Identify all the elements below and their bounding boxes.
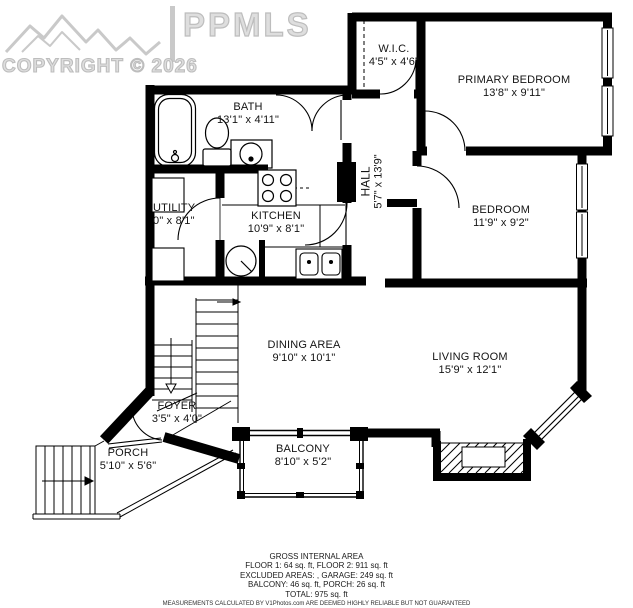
- watermark: PPMLS COPYRIGHT © 2026: [0, 0, 360, 100]
- room-dims: 13'1" x 4'11": [178, 114, 318, 127]
- room-name: PRIMARY BEDROOM: [424, 74, 604, 87]
- kitchen-sink: [296, 249, 342, 279]
- fireplace: [433, 439, 531, 477]
- room-name: BALCONY: [233, 443, 373, 456]
- gross-area-title: GROSS INTERNAL AREA: [0, 552, 633, 561]
- room-label-wic: W.I.C. 4'5" x 4'6": [354, 43, 434, 69]
- room-name: BATH: [178, 101, 318, 114]
- watermark-brand: PPMLS: [183, 6, 312, 44]
- watermark-copyright: COPYRIGHT © 2026: [2, 56, 198, 78]
- area-summary: GROSS INTERNAL AREA FLOOR 1: 64 sq. ft, …: [0, 552, 633, 608]
- room-name: DINING AREA: [224, 339, 384, 352]
- room-dims: 15'9" x 12'1": [380, 364, 560, 377]
- room-dims: 5'7" x 13'9": [373, 109, 386, 255]
- room-dims: 9'10" x 10'1": [224, 352, 384, 365]
- room-label-bedroom: BEDROOM 11'9" x 9'2": [411, 204, 591, 230]
- room-dims: 10'9" x 8'1": [206, 223, 346, 236]
- room-dims: 8'10" x 5'2": [233, 456, 373, 469]
- room-name: HALL: [359, 109, 373, 255]
- room-dims: 5'10" x 5'6": [68, 460, 188, 473]
- room-name: LIVING ROOM: [380, 351, 560, 364]
- vanity-sink: [231, 140, 272, 168]
- water-heater: [226, 246, 256, 276]
- room-dims: 3'5" x 4'0": [127, 413, 227, 426]
- floor-plan-canvas: PPMLS COPYRIGHT © 2026 W.I.C. 4'5" x 4'6…: [0, 0, 633, 607]
- room-name: BEDROOM: [411, 204, 591, 217]
- room-name: W.I.C.: [354, 43, 434, 56]
- room-name: KITCHEN: [206, 210, 346, 223]
- stove: [258, 170, 296, 206]
- room-label-foyer: FOYER 3'5" x 4'0": [127, 400, 227, 426]
- room-label-hall: HALL 5'7" x 13'9": [359, 109, 386, 255]
- total-area: TOTAL: 975 sq. ft: [0, 590, 633, 599]
- room-dims: 11'9" x 9'2": [411, 217, 591, 230]
- room-label-kitchen: KITCHEN 10'9" x 8'1": [206, 210, 346, 236]
- room-dims: 13'8" x 9'11": [424, 87, 604, 100]
- room-name: PORCH: [68, 447, 188, 460]
- room-label-porch: PORCH 5'10" x 5'6": [68, 447, 188, 473]
- balcony-porch-areas: BALCONY: 46 sq. ft, PORCH: 26 sq. ft: [0, 580, 633, 589]
- room-label-primary-bedroom: PRIMARY BEDROOM 13'8" x 9'11": [424, 74, 604, 100]
- floor-areas: FLOOR 1: 64 sq. ft, FLOOR 2: 911 sq. ft: [0, 561, 633, 570]
- room-label-bath: BATH 13'1" x 4'11": [178, 101, 318, 127]
- excluded-areas: EXCLUDED AREAS: , GARAGE: 249 sq. ft: [0, 571, 633, 580]
- room-label-balcony: BALCONY 8'10" x 5'2": [233, 443, 373, 469]
- room-dims: 4'5" x 4'6": [354, 56, 434, 69]
- corner-window: [532, 392, 582, 442]
- room-label-dining-area: DINING AREA 9'10" x 10'1": [224, 339, 384, 365]
- room-name: FOYER: [127, 400, 227, 413]
- room-label-living-room: LIVING ROOM 15'9" x 12'1": [380, 351, 560, 377]
